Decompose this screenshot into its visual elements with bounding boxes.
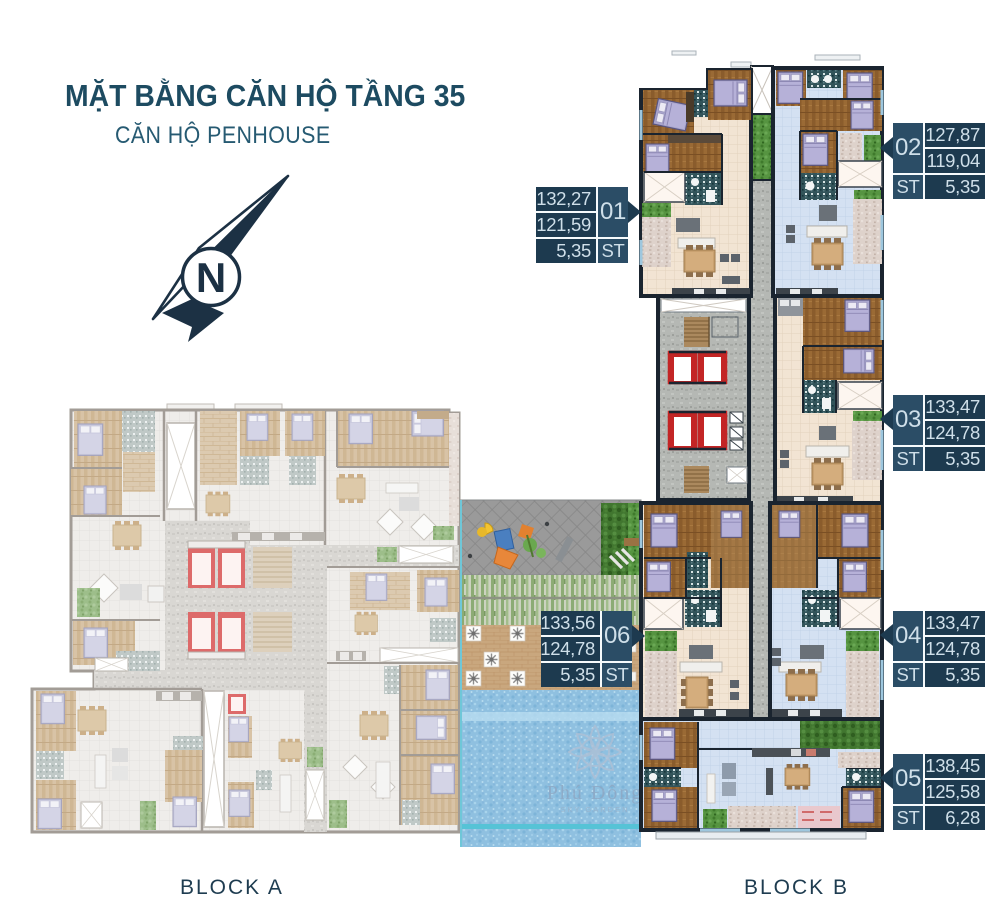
- svg-text:SKY GARDEN: SKY GARDEN: [560, 805, 629, 814]
- svg-text:N: N: [196, 254, 226, 301]
- svg-text:Phú Đông: Phú Đông: [547, 782, 644, 804]
